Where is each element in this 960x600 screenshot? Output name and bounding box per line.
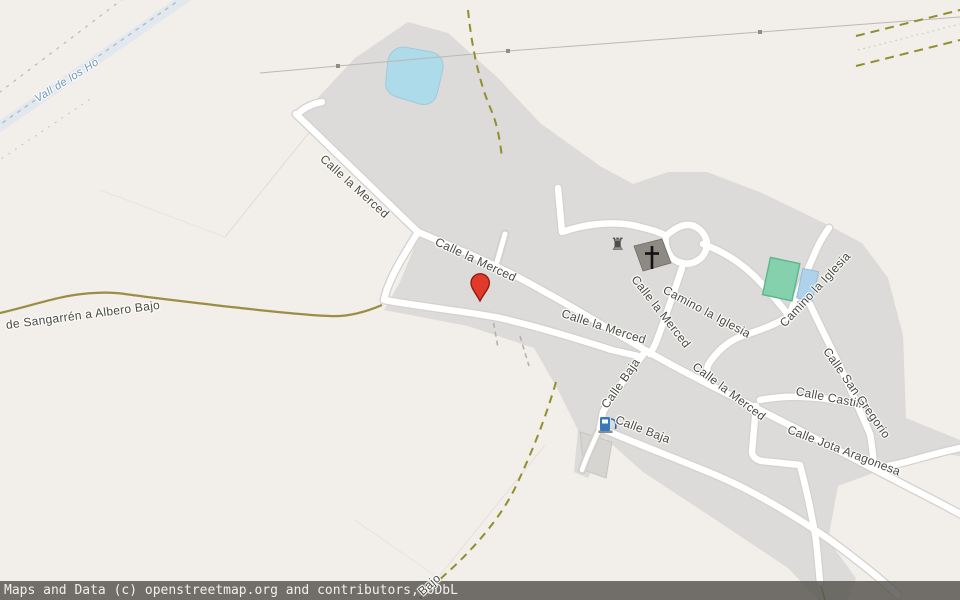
map-tiles: ♜ — [0, 0, 960, 600]
pond — [386, 47, 444, 105]
attribution-text: Maps and Data (c) openstreetmap.org and … — [4, 583, 458, 598]
residential-area — [300, 22, 960, 600]
attribution-bar: Maps and Data (c) openstreetmap.org and … — [0, 581, 960, 600]
track-path-minor — [858, 24, 960, 50]
castle-ruins-icon: ♜ — [610, 235, 625, 255]
map-canvas[interactable]: ♜ Vall de los Hode Sangarrén a Albero Ba… — [0, 0, 960, 600]
stream — [0, 0, 190, 163]
unpaved-road — [0, 293, 382, 317]
